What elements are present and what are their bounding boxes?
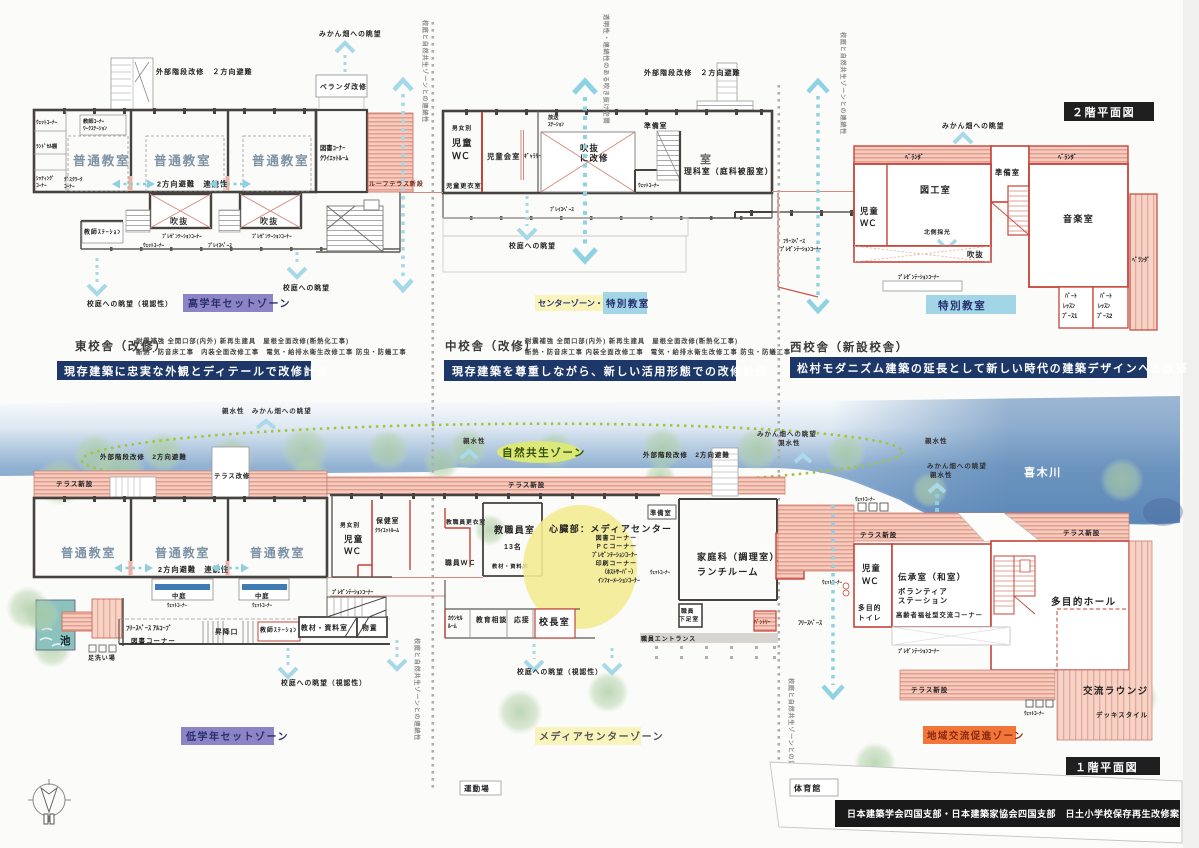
svg-text:テラス新設: テラス新設 [1063,528,1100,537]
svg-text:ルーフテラス新設: ルーフテラス新設 [369,180,424,188]
svg-text:ｺｰﾅｰ: ｺｰﾅｰ [64,183,75,190]
svg-text:ﾌﾟﾚｲｽﾍﾟｰｽ: ﾌﾟﾚｲｽﾍﾟｰｽ [550,205,574,213]
svg-text:ﾍﾞﾗﾝﾀﾞ: ﾍﾞﾗﾝﾀﾞ [1131,256,1150,264]
svg-text:耐震補強 全開口部(内外) 新再生建具 屋根全面改修(断熱化: 耐震補強 全開口部(内外) 新再生建具 屋根全面改修(断熱化工事) [525,336,738,345]
svg-text:昇降口: 昇降口 [215,627,238,636]
svg-text:吹抜: 吹抜 [580,143,599,153]
svg-text:保健室: 保健室 [375,516,399,525]
svg-text:ｳｪｯﾄｺｰﾅｰ: ｳｪｯﾄｺｰﾅｰ [252,602,273,609]
svg-text:多目的: 多目的 [858,603,881,612]
svg-text:13名: 13名 [504,542,522,551]
svg-text:児童: 児童 [451,137,473,148]
svg-text:男女別: 男女別 [451,124,472,132]
svg-text:図工室: 図工室 [920,184,951,195]
svg-text:児童: 児童 [343,534,364,544]
svg-text:応接: 応接 [514,615,530,624]
svg-text:普通教室: 普通教室 [154,153,212,168]
svg-text:みかん畑への眺望: みかん畑への眺望 [757,429,817,438]
svg-text:テラス新設: テラス新設 [56,479,93,488]
svg-text:足洗い場: 足洗い場 [88,654,116,662]
svg-text:ﾊﾟｰﾄ: ﾊﾟｰﾄ [1099,292,1112,300]
svg-text:職員ＷＣ: 職員ＷＣ [445,558,476,567]
svg-text:校庭と自然共生ゾーンとの連続性: 校庭と自然共生ゾーンとの連続性 [421,20,429,123]
svg-text:職員エントランス: 職員エントランス [641,635,696,643]
svg-text:ﾌﾟﾚｾﾞﾝﾃｰｼｮﾝｺｰﾅｰ: ﾌﾟﾚｾﾞﾝﾃｰｼｮﾝｺｰﾅｰ [780,245,822,253]
svg-text:ﾍﾞﾗﾝﾀﾞ: ﾍﾞﾗﾝﾀﾞ [1057,152,1077,161]
svg-text:運動場: 運動場 [464,783,490,793]
svg-text:ﾌﾘｰｽﾍﾟｰｽ: ﾌﾘｰｽﾍﾟｰｽ [783,237,805,245]
svg-text:親水性: 親水性 [778,438,800,447]
svg-text:準備室: 準備室 [995,168,1020,177]
svg-text:ＷＣ: ＷＣ [862,576,879,586]
svg-text:校庭への眺望: 校庭への眺望 [509,241,556,250]
svg-text:教師ｺｰﾅｰ: 教師ｺｰﾅｰ [83,117,105,125]
svg-text:ﾚｯｽﾝ: ﾚｯｽﾝ [1098,303,1110,310]
svg-text:教職員更衣室: 教職員更衣室 [446,518,486,526]
svg-text:デッキスタイル: デッキスタイル [1096,710,1148,719]
svg-text:放送: 放送 [547,113,559,121]
svg-text:準備室: 準備室 [644,121,667,130]
svg-text:児童更衣室: 児童更衣室 [445,182,482,190]
svg-text:外部階段改修 2方向避難: 外部階段改修 2方向避難 [100,452,187,461]
svg-text:みかん畑への眺望: みかん畑への眺望 [942,121,1005,130]
svg-text:西校舎（新設校舎）: 西校舎（新設校舎） [790,340,909,354]
svg-text:伝承室（和室）: 伝承室（和室） [898,572,966,582]
svg-text:ﾗﾝﾄﾞｾﾙ棚: ﾗﾝﾄﾞｾﾙ棚 [36,142,58,150]
svg-text:低学年セットゾーン: 低学年セットゾーン [185,730,289,743]
svg-text:室: 室 [700,152,713,166]
svg-text:ｺｰﾅｰ: ｺｰﾅｰ [36,182,47,189]
svg-text:心臓部：メディアセンター: 心臓部：メディアセンター [549,523,672,534]
svg-text:特別教室: 特別教室 [938,299,986,312]
svg-text:理科室（庭科被服室）: 理科室（庭科被服室） [684,166,774,176]
svg-text:ランチルーム: ランチルーム [697,567,759,577]
svg-text:ｶｳﾝｾﾙ: ｶｳﾝｾﾙ [448,615,463,622]
svg-text:教師ｽﾃｰｼｮﾝ: 教師ｽﾃｰｼｮﾝ [259,626,297,634]
svg-text:ｳｪｯﾄｺｰﾅｰ: ｳｪｯﾄｺｰﾅｰ [638,182,660,189]
svg-text:現存建築を尊重しながら、新しい活用形態での改修計画: 現存建築を尊重しながら、新しい活用形態での改修計画 [452,364,768,378]
svg-text:ｸﾜｲｴｯﾄﾙｰﾑ: ｸﾜｲｴｯﾄﾙｰﾑ [375,526,399,534]
svg-text:透明性・連続性のある吹き抜け空間: 透明性・連続性のある吹き抜け空間 [602,14,610,124]
svg-text:教師ｽﾃｰｼｮﾝ: 教師ｽﾃｰｼｮﾝ [83,228,121,236]
svg-text:親水性 みかん畑への眺望: 親水性 みかん畑への眺望 [222,406,312,415]
svg-text:みかん畑への眺望: みかん畑への眺望 [319,29,382,38]
svg-text:ﾌﾟﾚｾﾞﾝﾃｰｼｮﾝｺｰﾅｰ: ﾌﾟﾚｾﾞﾝﾃｰｼｮﾝｺｰﾅｰ [898,647,940,655]
svg-text:多目的ホール: 多目的ホール [1051,596,1117,608]
svg-text:池: 池 [60,634,72,647]
svg-text:テラス新設: テラス新設 [508,480,545,489]
svg-text:ボランティア: ボランティア [898,587,948,596]
svg-text:校庭への眺望（視認性）: 校庭への眺望（視認性） [87,299,173,308]
svg-text:普通教室: 普通教室 [252,153,310,168]
svg-text:ＰＣコーナー: ＰＣコーナー [596,543,637,551]
svg-text:吹抜: 吹抜 [260,216,278,226]
svg-text:ステーション: ステーション [898,596,948,605]
svg-text:ﾌﾟﾚｲｽﾍﾟｰｽ: ﾌﾟﾚｲｽﾍﾟｰｽ [208,241,232,249]
svg-text:ﾊﾟﾝﾄﾘｰ: ﾊﾟﾝﾄﾘｰ [753,618,771,626]
svg-text:児童: 児童 [861,563,881,573]
svg-text:テラス新設: テラス新設 [911,685,948,694]
svg-text:耐震補強 全開口部(内外) 新再生建具 屋根全面改修(断熱化: 耐震補強 全開口部(内外) 新再生建具 屋根全面改修(断熱化工事) [136,336,349,345]
svg-text:吹抜: 吹抜 [967,250,984,259]
svg-text:ｷﾞｬﾗﾘｰ: ｷﾞｬﾗﾘｰ [524,152,541,160]
svg-text:地域交流促進ゾーン: 地域交流促進ゾーン [927,730,1025,742]
svg-text:喜木川: 喜木川 [1024,465,1062,479]
svg-text:外部階段改修 ２方向避難: 外部階段改修 ２方向避難 [156,67,253,76]
svg-text:校庭への眺望（視認性）: 校庭への眺望（視認性） [281,678,367,687]
svg-text:１階平面図: １階平面図 [1075,760,1138,774]
svg-text:外部階段改修 ２方向避難: 外部階段改修 ２方向避難 [644,68,741,77]
svg-text:児童: 児童 [859,206,879,216]
svg-text:ｼｯﾃｨﾝｸﾞ: ｼｯﾃｨﾝｸﾞ [36,174,55,182]
svg-text:ﾌﾟﾚｾﾞﾝﾃｰｼｮﾝｺｰﾅｰ: ﾌﾟﾚｾﾞﾝﾃｰｼｮﾝｺｰﾅｰ [592,551,637,559]
svg-text:男女別: 男女別 [339,521,360,529]
svg-text:外部階段改修 2方向避難: 外部階段改修 2方向避難 [643,450,730,459]
svg-text:印刷コーナー: 印刷コーナー [596,560,637,568]
svg-text:中庭: 中庭 [255,591,269,600]
svg-text:ﾌﾘｰｽﾍﾟｰｽ: ﾌﾘｰｽﾍﾟｰｽ [798,619,822,627]
svg-text:松村モダニズム建築の延長として新しい時代の建築デザインへと改: 松村モダニズム建築の延長として新しい時代の建築デザインへと改築 [797,361,1188,375]
svg-text:吹抜: 吹抜 [170,216,188,226]
svg-text:ｳｪｯﾄｺｰﾅｰ: ｳｪｯﾄｺｰﾅｰ [1024,710,1045,717]
svg-text:体育館: 体育館 [794,783,822,793]
svg-text:日本建築学会四国支部・日本建築家協会四国支部 日土小学校保存: 日本建築学会四国支部・日本建築家協会四国支部 日土小学校保存再生改修案 [847,808,1180,819]
svg-text:自然共生ゾーン: 自然共生ゾーン [502,446,586,459]
svg-text:図書ｺｰﾅｰ: 図書ｺｰﾅｰ [320,143,345,152]
svg-text:断熱・防音床工事 内装全面改修工事 電気・給排水衛生改修工事: 断熱・防音床工事 内装全面改修工事 電気・給排水衛生改修工事 防虫・防蟻工事 [525,347,791,356]
svg-text:普通教室: 普通教室 [73,153,131,168]
svg-text:ﾚｯｽﾝ: ﾚｯｽﾝ [1063,303,1075,310]
svg-text:ﾍﾞﾗﾝﾀﾞ: ﾍﾞﾗﾝﾀﾞ [904,152,924,161]
svg-text:教職員室: 教職員室 [493,524,535,535]
svg-text:ﾃﾞｽｸﾜｰｸ: ﾃﾞｽｸﾜｰｸ [64,175,83,183]
svg-text:高学年セットゾーン: 高学年セットゾーン [188,297,291,310]
svg-text:職員: 職員 [681,607,694,615]
svg-text:みかん畑への眺望: みかん畑への眺望 [927,461,987,470]
svg-text:校庭と自然共生ゾーンとの連続性: 校庭と自然共生ゾーンとの連続性 [839,32,847,135]
svg-text:校庭への眺望: 校庭への眺望 [283,283,330,292]
svg-text:ｳｪｯﾄｺｰﾅｰ: ｳｪｯﾄｺｰﾅｰ [650,569,671,576]
svg-text:ﾌﾞｰｽ2: ﾌﾞｰｽ2 [1097,312,1113,320]
svg-text:ﾜｰｸｽﾃｰｼｮﾝ: ﾜｰｸｽﾃｰｼｮﾝ [83,124,107,132]
svg-text:下足室: 下足室 [679,615,699,623]
svg-text:校庭への眺望（視認性）: 校庭への眺望（視認性） [517,667,603,676]
svg-text:普通教室: 普通教室 [250,545,305,560]
svg-text:メディアセンターゾーン: メディアセンターゾーン [539,730,664,743]
svg-text:ｳｪｯﾄｺｰﾅｰ: ｳｪｯﾄｺｰﾅｰ [167,602,188,609]
svg-text:親水性: 親水性 [930,470,952,479]
svg-text:（ﾎｽﾄｻｰﾊﾞｰ）: （ﾎｽﾄｻｰﾊﾞｰ） [601,568,637,576]
svg-text:中庭: 中庭 [172,591,186,600]
svg-text:ﾌﾟﾚｾﾞﾝﾃｰｼｮﾝｺｰﾅｰ: ﾌﾟﾚｾﾞﾝﾃｰｼｮﾝｺｰﾅｰ [332,588,374,596]
svg-text:家庭科（調理室）: 家庭科（調理室） [697,551,780,562]
svg-text:ﾊﾟｰﾄ: ﾊﾟｰﾄ [1064,292,1077,300]
svg-text:ﾌﾟﾚｾﾞﾝﾃｰｼｮﾝｺｰﾅｰ: ﾌﾟﾚｾﾞﾝﾃｰｼｮﾝｺｰﾅｰ [162,232,202,240]
svg-text:ｸﾜｲｴｯﾄﾙｰﾑ: ｸﾜｲｴｯﾄﾙｰﾑ [320,154,349,162]
svg-text:ﾌﾟﾚｾﾞﾝﾃｰｼｮﾝｺｰﾅｰ: ﾌﾟﾚｾﾞﾝﾃｰｼｮﾝｺｰﾅｰ [898,273,940,281]
svg-text:断熱・防音床工事 内装全面改修工事 電気・給排水衛生改修工事: 断熱・防音床工事 内装全面改修工事 電気・給排水衛生改修工事 防虫・防蟻工事 [136,347,407,356]
svg-text:準備室: 準備室 [650,508,672,517]
svg-text:教材・資料室: 教材・資料室 [300,623,348,632]
svg-text:ﾌﾘｰｽﾍﾟｰｽ ｱﾙｺｰﾌﾞ: ﾌﾘｰｽﾍﾟｰｽ ｱﾙｺｰﾌﾞ [126,623,172,632]
svg-text:ＷＣ: ＷＣ [860,218,877,228]
svg-text:校庭と自然共生ゾーンとの連続性: 校庭と自然共生ゾーンとの連続性 [413,638,421,741]
svg-text:ベランダ改修: ベランダ改修 [320,82,367,91]
svg-text:図書コーナー: 図書コーナー [131,636,176,645]
svg-text:親水性: 親水性 [463,436,485,445]
svg-text:北側採光: 北側採光 [924,228,951,236]
svg-text:音楽室: 音楽室 [1063,213,1094,224]
svg-text:ｲﾝﾌｫｰﾒｰｼｮﾝｺｰﾅｰ: ｲﾝﾌｫｰﾒｰｼｮﾝｺｰﾅｰ [598,578,640,585]
svg-text:ＷＣ: ＷＣ [452,151,470,161]
svg-text:図書コーナー: 図書コーナー [596,534,637,542]
svg-text:ｳｪｯﾄｺｰﾅｰ: ｳｪｯﾄｺｰﾅｰ [143,242,165,249]
svg-text:普通教室: 普通教室 [155,545,210,560]
svg-text:教育相談: 教育相談 [475,615,507,624]
svg-text:ﾌﾟﾚｾﾞﾝﾃｰｼｮﾝｺｰﾅｰ: ﾌﾟﾚｾﾞﾝﾃｰｼｮﾝｺｰﾅｰ [252,232,292,240]
svg-text:特別教室: 特別教室 [606,298,650,310]
svg-text:現存建築に忠実な外観とディテールで改修計画: 現存建築に忠実な外観とディテールで改修計画 [64,364,329,378]
svg-text:高齢者福祉型交流コーナー: 高齢者福祉型交流コーナー [896,610,983,619]
svg-text:ｳｪｯﾄｺｰﾅｰ: ｳｪｯﾄｺｰﾅｰ [855,496,876,503]
svg-text:ＷＣ: ＷＣ [344,546,361,556]
svg-text:親水性: 親水性 [925,436,947,445]
svg-text:ﾌﾞｰｽ1: ﾌﾞｰｽ1 [1062,312,1078,320]
svg-text:交流ラウンジ: 交流ラウンジ [1083,685,1149,697]
svg-text:校長室: 校長室 [539,616,570,627]
svg-text:普通教室: 普通教室 [61,545,116,560]
svg-text:2方向避難 連続性: 2方向避難 連続性 [157,180,228,189]
svg-text:テラス新設: テラス新設 [860,530,897,539]
svg-text:ｳｪｯﾄｺｰﾅｰ: ｳｪｯﾄｺｰﾅｰ [36,119,58,126]
svg-text:ﾙｰﾑ: ﾙｰﾑ [447,623,457,630]
svg-text:テラス改修: テラス改修 [214,471,250,480]
svg-text:センターゾーン・: センターゾーン・ [538,298,603,308]
svg-text:ｽﾃｰｼｮﾝ: ｽﾃｰｼｮﾝ [548,121,564,128]
svg-text:中校舎（改修）: 中校舎（改修） [445,339,538,353]
svg-text:児童会室: 児童会室 [486,152,521,161]
svg-text:２階平面図: ２階平面図 [1072,105,1135,119]
svg-text:トイレ: トイレ [858,614,881,622]
